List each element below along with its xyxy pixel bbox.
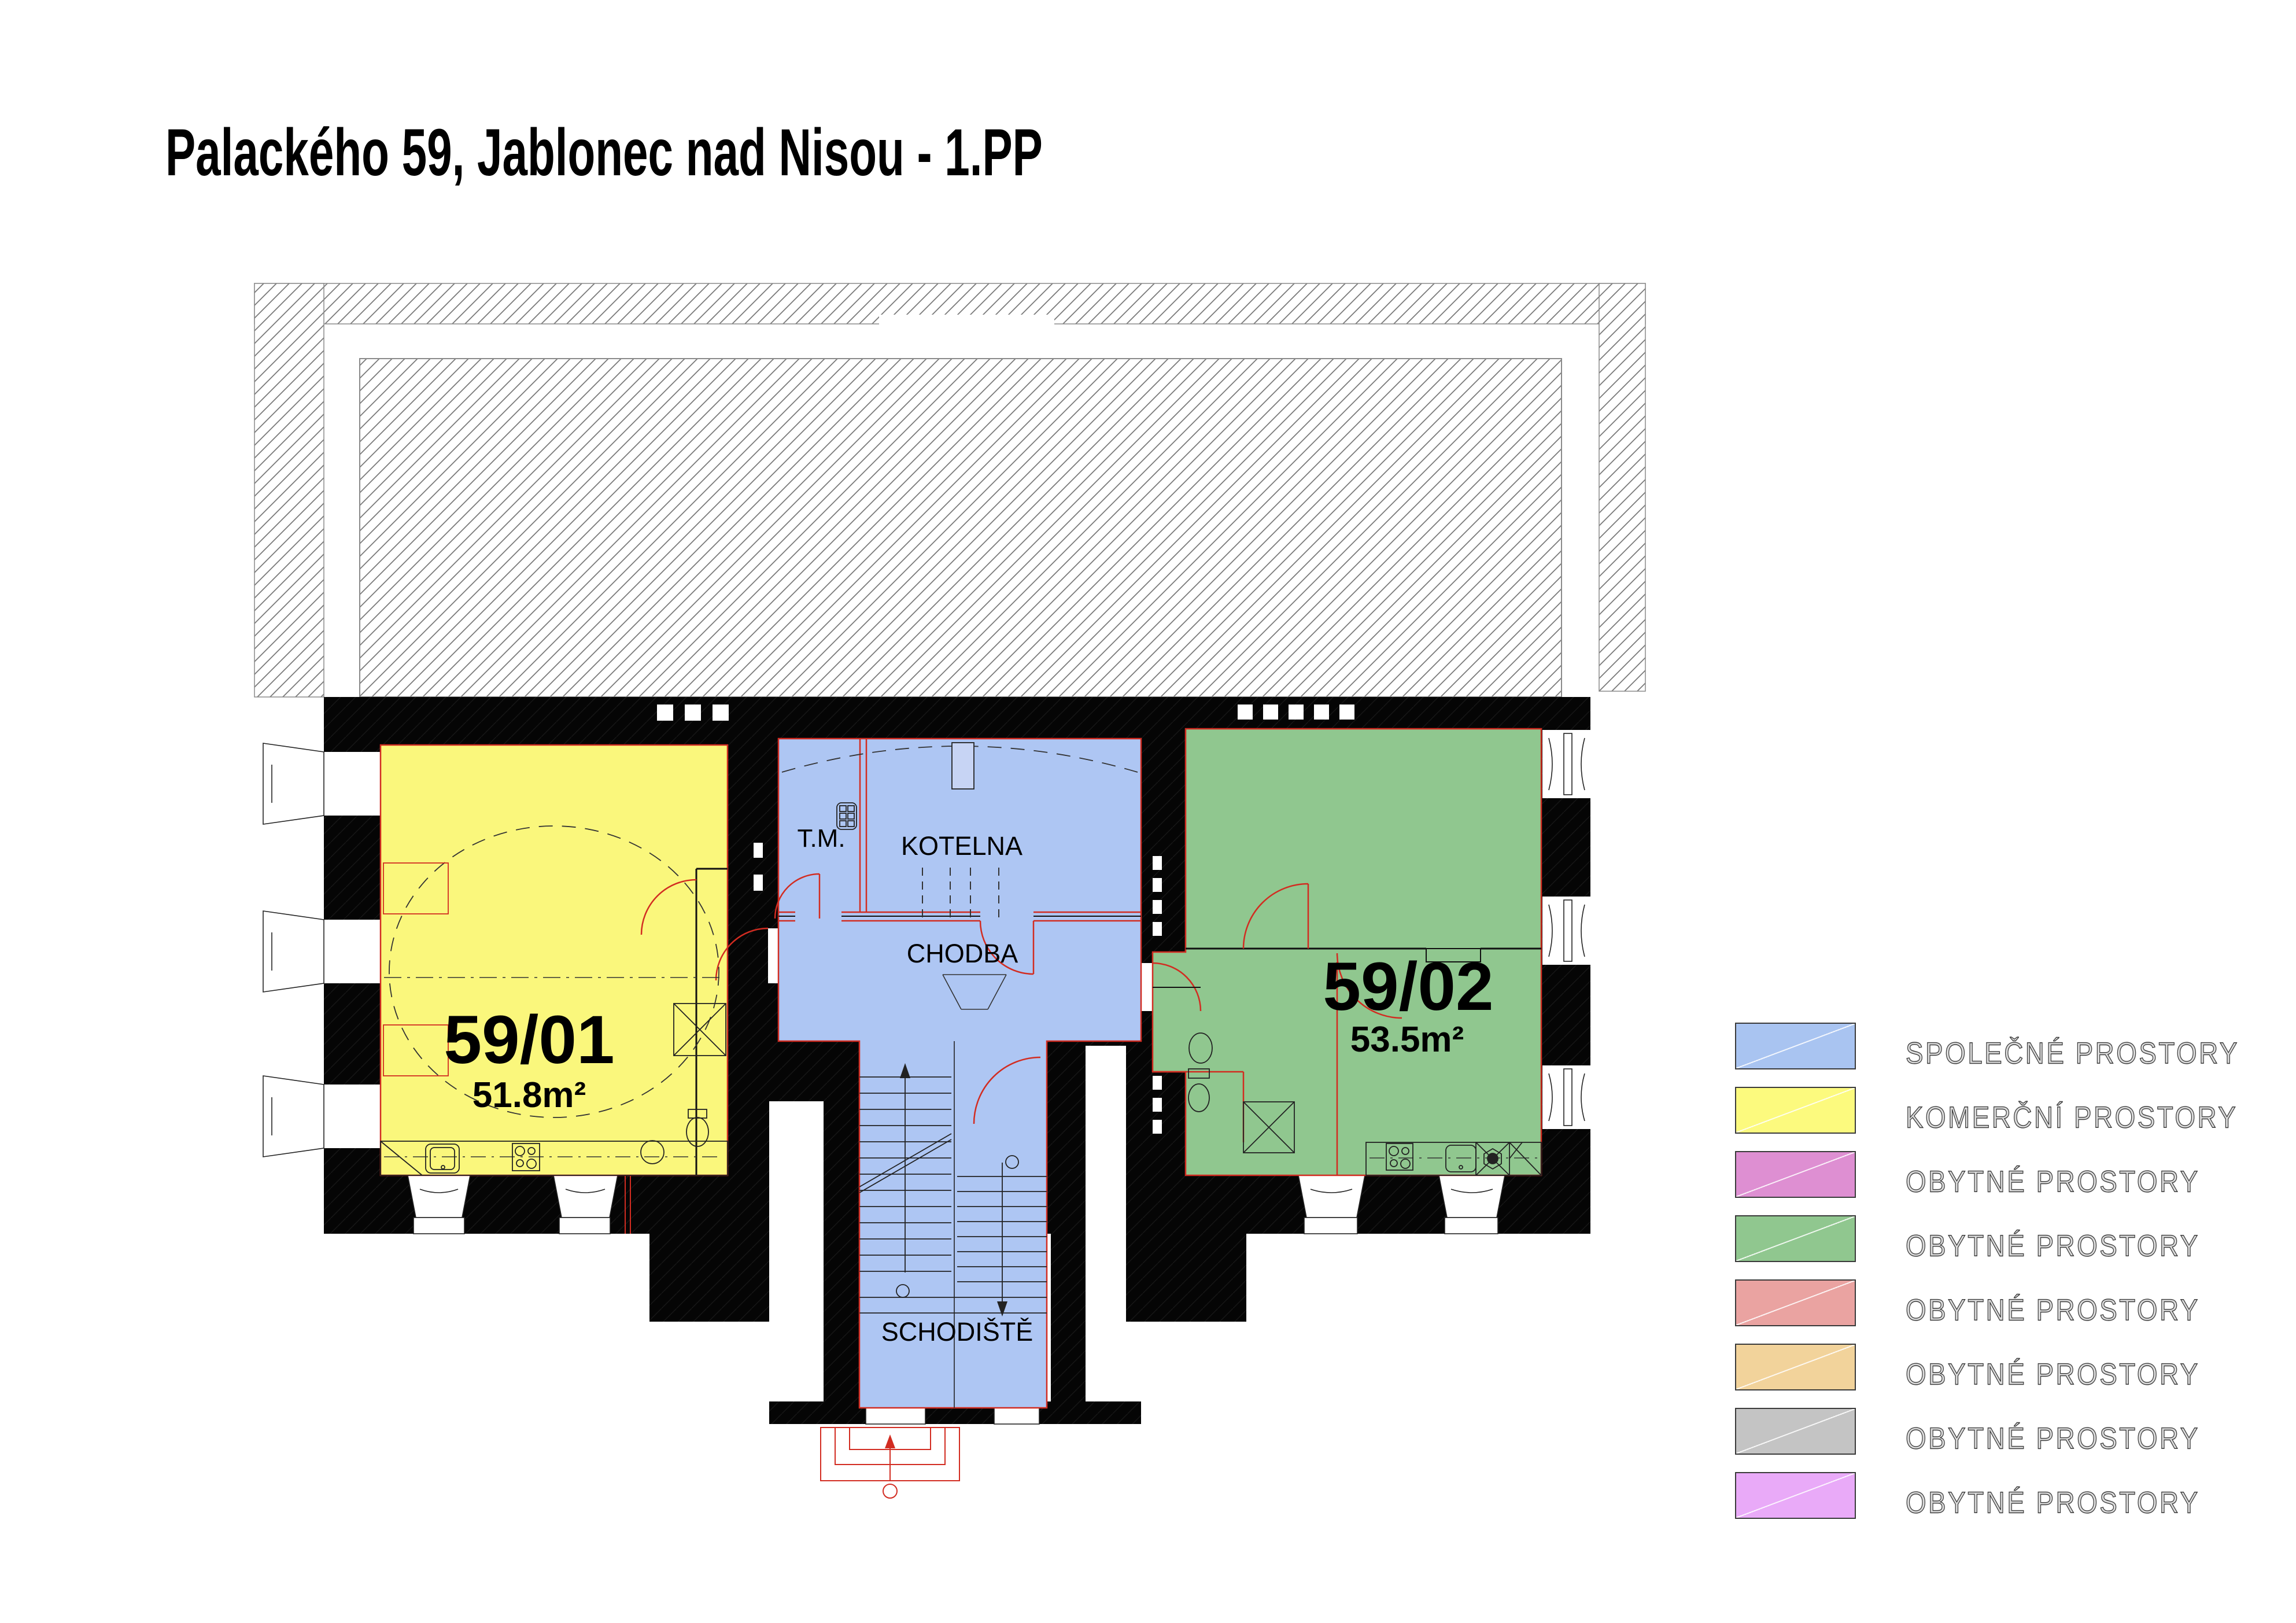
unit2-id-label: 59/02	[1323, 949, 1493, 1025]
floor-plan-page: Palackého 59, Jablonec nad Nisou - 1.PP	[0, 0, 2296, 1623]
entry-porch	[821, 1427, 959, 1498]
legend-swatch-orange	[1735, 1344, 1856, 1390]
wall-stair-left	[824, 1234, 859, 1424]
legend-row-obytne-1: OBYTNÉ PROSTORY	[1735, 1151, 2256, 1215]
unit2-area-label: 53.5m²	[1350, 1020, 1464, 1060]
wall-stair-right	[1051, 1234, 1086, 1424]
legend-swatch-salmon	[1735, 1279, 1856, 1326]
window-bottom-3	[1298, 1175, 1365, 1234]
light-well-left	[769, 1101, 824, 1401]
legend-row-obytne-3: OBYTNÉ PROSTORY	[1735, 1279, 2256, 1344]
legend-label: OBYTNÉ PROSTORY	[1906, 1229, 2200, 1263]
schodiste-label: SCHODIŠTĚ	[881, 1317, 1033, 1347]
door-gap-yellow-chodba	[768, 928, 778, 983]
chimney	[952, 743, 974, 789]
window-left-1	[263, 743, 381, 824]
legend-swatch-green	[1735, 1215, 1856, 1262]
window-right-1	[1542, 730, 1590, 798]
unit1-id-label: 59/01	[444, 1002, 614, 1078]
chodba-label: CHODBA	[907, 939, 1018, 968]
legend-row-obytne-2: OBYTNÉ PROSTORY	[1735, 1215, 2256, 1279]
window-bottom-2	[553, 1175, 618, 1234]
unit1-area-label: 51.8m²	[473, 1075, 586, 1115]
wall-step-right	[1126, 1234, 1246, 1322]
entry-door-gap-1	[866, 1408, 925, 1424]
wall-step-left	[649, 1234, 769, 1322]
legend-row-obytne-4: OBYTNÉ PROSTORY	[1735, 1344, 2256, 1408]
adjacent-building-hatch	[254, 283, 1645, 697]
legend-row-obytne-5: OBYTNÉ PROSTORY	[1735, 1408, 2256, 1472]
legend-row-spolecne: SPOLEČNÉ PROSTORY	[1735, 1023, 2256, 1087]
legend-swatch-gray	[1735, 1408, 1856, 1455]
hatch-left-band	[254, 283, 324, 697]
legend: SPOLEČNÉ PROSTORY KOMERČNÍ PROSTORY OBYT…	[1735, 1023, 2256, 1543]
window-left-2	[263, 911, 381, 992]
window-bottom-4	[1439, 1175, 1505, 1234]
legend-swatch-pink	[1735, 1151, 1856, 1198]
door-gap-chodba-green	[1141, 963, 1153, 1011]
window-right-3	[1542, 1065, 1590, 1129]
window-bottom-1	[408, 1175, 470, 1234]
legend-swatch-komercni	[1735, 1087, 1856, 1134]
legend-label: OBYTNÉ PROSTORY	[1906, 1485, 2200, 1520]
entry-door-gap-2	[994, 1408, 1039, 1424]
legend-label: OBYTNÉ PROSTORY	[1906, 1293, 2200, 1327]
legend-label: KOMERČNÍ PROSTORY	[1906, 1100, 2238, 1135]
window-right-2	[1542, 897, 1590, 965]
legend-label: OBYTNÉ PROSTORY	[1906, 1357, 2200, 1392]
legend-swatch-spolecne	[1735, 1023, 1856, 1069]
tm-label: T.M.	[797, 824, 845, 853]
hatch-top-step	[879, 315, 1054, 324]
legend-label: OBYTNÉ PROSTORY	[1906, 1164, 2200, 1199]
legend-label: SPOLEČNÉ PROSTORY	[1906, 1036, 2239, 1071]
hatch-right-band	[1599, 283, 1645, 691]
legend-label: OBYTNÉ PROSTORY	[1906, 1421, 2200, 1456]
legend-row-obytne-6: OBYTNÉ PROSTORY	[1735, 1472, 2256, 1536]
legend-swatch-violet	[1735, 1472, 1856, 1519]
window-left-3	[263, 1076, 381, 1157]
light-well-right	[1086, 1046, 1126, 1401]
hatch-inner-block	[360, 359, 1562, 697]
legend-row-komercni: KOMERČNÍ PROSTORY	[1735, 1087, 2256, 1151]
kotelna-label: KOTELNA	[901, 831, 1023, 861]
